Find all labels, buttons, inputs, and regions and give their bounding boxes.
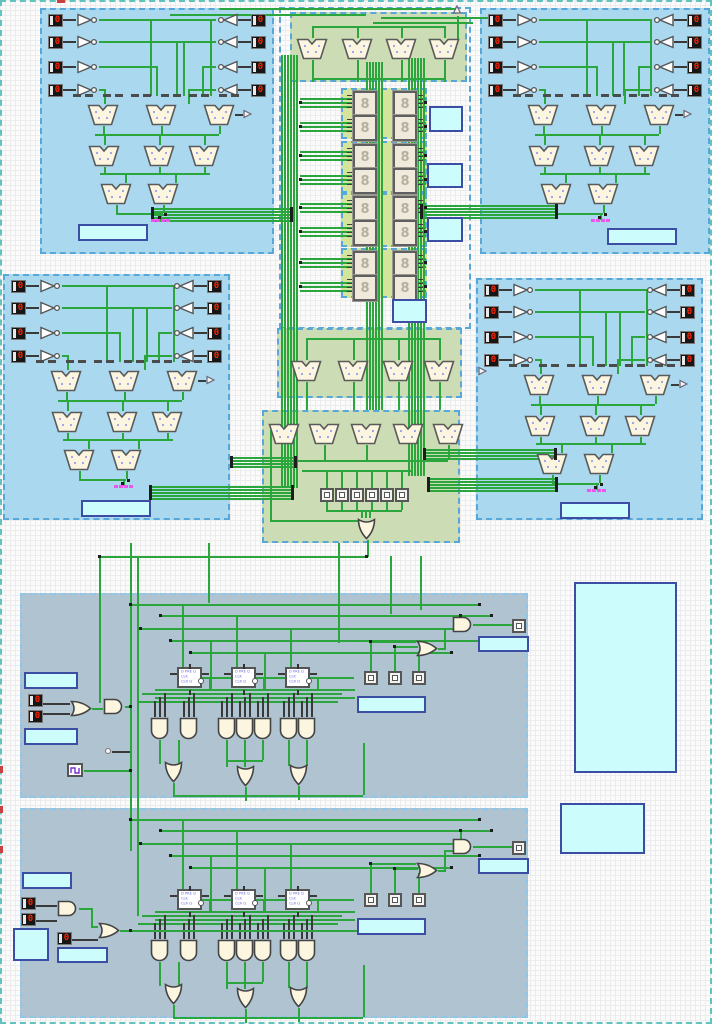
seven-segment-display[interactable]: 8 (353, 196, 377, 222)
junction-dot (365, 555, 368, 558)
multiplexer[interactable] (166, 370, 198, 392)
not-gate[interactable] (76, 60, 99, 74)
and-gate-down[interactable] (150, 939, 169, 962)
input-pin[interactable]: 0 (207, 350, 222, 363)
and-gate-down[interactable] (150, 717, 169, 740)
wire (255, 677, 289, 679)
not-gate[interactable] (512, 330, 535, 344)
not-gate[interactable] (652, 13, 675, 27)
led-probe[interactable] (412, 893, 426, 907)
input-pin[interactable]: 0 (251, 61, 266, 74)
seven-segment-display[interactable]: 8 (353, 144, 377, 170)
wire (310, 895, 317, 897)
multiplexer[interactable] (628, 145, 660, 167)
wire (160, 830, 492, 832)
wire (245, 1009, 247, 1023)
input-pin[interactable]: 0 (251, 36, 266, 49)
input-pin[interactable]: 0 (207, 302, 222, 315)
wire (300, 282, 352, 284)
wire (543, 126, 545, 134)
label-box[interactable] (357, 918, 426, 935)
wire (301, 701, 303, 717)
led-probe[interactable] (395, 488, 409, 502)
label-box[interactable] (560, 502, 630, 519)
wire (300, 231, 352, 233)
display-glyph: 8 (360, 258, 369, 271)
input-pin[interactable]: 0 (11, 350, 26, 363)
or-gate[interactable] (416, 862, 438, 879)
and-gate-down[interactable] (235, 717, 254, 740)
wire (159, 962, 161, 986)
label-box[interactable] (57, 947, 108, 963)
pin-value: 0 (16, 328, 25, 339)
unconnected-node (166, 219, 170, 222)
seven-segment-display[interactable]: 8 (393, 91, 417, 117)
wire (130, 543, 132, 850)
ff-line1: D PRE Q (181, 670, 192, 673)
multiplexer[interactable] (151, 411, 183, 433)
wire (503, 41, 516, 43)
not-gate[interactable] (512, 305, 535, 319)
and-gate[interactable] (103, 698, 125, 715)
wire (624, 89, 626, 104)
wire (300, 290, 352, 292)
d-flip-flop[interactable]: D PRE QCLKCLR Q (177, 889, 202, 910)
input-pin[interactable]: 0 (11, 327, 26, 340)
seven-segment-display[interactable]: 8 (393, 168, 417, 194)
wire (79, 471, 81, 479)
output-arrow[interactable] (206, 375, 215, 385)
input-pin[interactable]: 0 (48, 61, 63, 74)
wire (63, 89, 76, 91)
display-glyph: 8 (360, 227, 369, 240)
clock-generator[interactable] (67, 763, 83, 777)
multiplexer[interactable] (203, 104, 235, 126)
input-pin[interactable]: 0 (488, 36, 503, 49)
multiplexer[interactable] (341, 38, 373, 60)
wire (126, 471, 128, 479)
wire (353, 338, 355, 360)
d-flip-flop[interactable]: D PRE QCLKCLR Q (231, 667, 256, 688)
not-gate[interactable] (645, 283, 668, 297)
not-gate[interactable] (652, 60, 675, 74)
input-pin[interactable]: 0 (680, 354, 695, 367)
seven-segment-display[interactable]: 8 (353, 168, 377, 194)
or-gate[interactable] (70, 700, 92, 717)
d-flip-flop[interactable]: D PRE QCLKCLR Q (285, 667, 310, 688)
multiplexer[interactable] (587, 183, 619, 205)
multiplexer[interactable] (63, 449, 95, 471)
multiplexer[interactable] (308, 423, 340, 445)
not-gate[interactable] (172, 301, 195, 315)
multiplexer[interactable] (428, 38, 460, 60)
pin-value: 0 (692, 85, 701, 96)
and-gate[interactable] (452, 838, 474, 855)
wire (144, 355, 172, 357)
wire (300, 258, 352, 260)
wire (311, 915, 313, 939)
wire (300, 175, 352, 177)
wire (267, 915, 269, 939)
output-arrow[interactable] (243, 109, 252, 119)
wire (150, 489, 293, 491)
bus-tap (567, 364, 575, 367)
input-pin[interactable]: 0 (484, 284, 499, 297)
or-gate-down[interactable] (236, 765, 255, 787)
input-pin[interactable]: 0 (48, 14, 63, 27)
input-pin[interactable]: 0 (687, 61, 702, 74)
input-pin[interactable]: 0 (48, 36, 63, 49)
multiplexer[interactable] (188, 145, 220, 167)
label-box[interactable] (429, 106, 463, 132)
led-probe[interactable] (364, 671, 378, 685)
multiplexer[interactable] (527, 104, 559, 126)
multiplexer[interactable] (290, 360, 322, 382)
ff-line3: CLR Q (235, 902, 246, 905)
seven-segment-display[interactable]: 8 (393, 275, 417, 301)
not-gate[interactable] (172, 279, 195, 293)
input-pin[interactable]: 0 (251, 84, 266, 97)
input-pin[interactable]: 0 (21, 913, 36, 926)
or-gate-down[interactable] (289, 764, 308, 786)
led-probe[interactable] (350, 488, 364, 502)
wire (619, 311, 621, 366)
not-gate[interactable] (645, 305, 668, 319)
label-box[interactable] (478, 858, 529, 874)
input-pin[interactable]: 0 (28, 710, 43, 723)
multiplexer[interactable] (147, 183, 179, 205)
and-gate[interactable] (452, 616, 474, 633)
not-gate[interactable] (652, 35, 675, 49)
input-pin[interactable]: 0 (687, 36, 702, 49)
wire (256, 895, 263, 897)
unconnected-node (129, 485, 133, 488)
multiplexer[interactable] (639, 374, 671, 396)
or-gate-down[interactable] (164, 983, 183, 1005)
wire (473, 846, 512, 848)
unconnected-node (587, 489, 591, 492)
junction-dot (427, 489, 430, 492)
display-glyph: 8 (360, 122, 369, 135)
not-gate[interactable] (516, 35, 539, 49)
multiplexer[interactable] (100, 183, 132, 205)
not-gate[interactable] (76, 13, 99, 27)
multiplexer[interactable] (643, 104, 675, 126)
input-pin[interactable]: 0 (488, 84, 503, 97)
input-pin[interactable]: 0 (11, 302, 26, 315)
label-box-large[interactable] (574, 582, 677, 773)
led-probe[interactable] (388, 671, 402, 685)
seven-segment-display[interactable]: 8 (393, 220, 417, 246)
or-gate-down[interactable] (236, 987, 255, 1009)
or-gate[interactable] (98, 922, 120, 939)
not-gate[interactable] (516, 13, 539, 27)
output-arrow[interactable] (478, 366, 487, 376)
not-gate[interactable] (39, 279, 62, 293)
seven-segment-display[interactable]: 8 (393, 144, 417, 170)
label-box[interactable] (427, 163, 463, 188)
or-gate[interactable] (416, 640, 438, 657)
junction-dot (299, 230, 302, 233)
wire (386, 502, 388, 510)
bus-tap (583, 94, 591, 97)
multiplexer[interactable] (624, 415, 656, 437)
not-gate[interactable] (216, 60, 239, 74)
seven-segment-display[interactable]: 8 (393, 115, 417, 141)
d-flip-flop[interactable]: D PRE QCLKCLR Q (231, 889, 256, 910)
wire (238, 66, 252, 68)
label-box[interactable] (478, 636, 529, 652)
or-gate-down[interactable] (357, 518, 376, 540)
label-box[interactable] (24, 728, 78, 745)
and-gate-down[interactable] (297, 939, 316, 962)
pin-value: 0 (26, 898, 35, 909)
wire (300, 126, 352, 128)
wire (659, 126, 661, 134)
wire (300, 122, 352, 124)
input-pin[interactable]: 0 (687, 14, 702, 27)
wire (176, 41, 216, 43)
junction-dot (478, 854, 481, 857)
wire (306, 962, 308, 988)
label-box[interactable] (427, 217, 463, 242)
led-probe[interactable] (364, 893, 378, 907)
pin-value: 0 (212, 303, 221, 314)
label-box[interactable] (22, 872, 72, 889)
ff-line2: CLK (289, 897, 300, 900)
wire (219, 126, 221, 134)
multiplexer[interactable] (524, 415, 556, 437)
multiplexer[interactable] (583, 145, 615, 167)
multiplexer[interactable] (108, 370, 140, 392)
wire (26, 285, 39, 287)
wire (615, 173, 617, 183)
multiplexer[interactable] (385, 38, 417, 60)
bus-tap (219, 94, 227, 97)
label-box[interactable] (607, 228, 677, 245)
led-probe[interactable] (380, 488, 394, 502)
not-gate[interactable] (216, 13, 239, 27)
led-probe[interactable] (335, 488, 349, 502)
input-pin[interactable]: 0 (11, 280, 26, 293)
wire (160, 615, 492, 617)
label-box[interactable] (24, 672, 78, 689)
output-arrow[interactable] (683, 109, 692, 119)
multiplexer[interactable] (579, 415, 611, 437)
input-pin[interactable]: 0 (680, 284, 695, 297)
and-gate-down[interactable] (179, 939, 198, 962)
bus-tap (36, 360, 44, 363)
or-gate-down[interactable] (164, 761, 183, 783)
multiplexer[interactable] (523, 374, 555, 396)
multiplexer[interactable] (106, 411, 138, 433)
led-probe[interactable] (320, 488, 334, 502)
and-gate-down[interactable] (217, 939, 236, 962)
wire (499, 359, 512, 361)
multiplexer[interactable] (143, 145, 175, 167)
wire (231, 915, 233, 939)
input-pin[interactable]: 0 (48, 84, 63, 97)
wire (624, 89, 652, 91)
display-glyph: 8 (360, 151, 369, 164)
input-pin[interactable]: 0 (488, 61, 503, 74)
wire (288, 962, 290, 988)
bus-tap (571, 94, 579, 97)
not-gate[interactable] (645, 330, 668, 344)
multiplexer[interactable] (337, 360, 369, 382)
d-flip-flop[interactable]: D PRE QCLKCLR Q (177, 667, 202, 688)
seven-segment-display[interactable]: 8 (393, 251, 417, 277)
unconnected-node (591, 219, 595, 222)
input-pin[interactable]: 0 (680, 331, 695, 344)
label-box[interactable] (357, 696, 426, 713)
input-pin[interactable]: 0 (488, 14, 503, 27)
wire (236, 615, 238, 667)
not-gate[interactable] (39, 326, 62, 340)
junction-dot (139, 627, 142, 630)
wire (36, 920, 57, 922)
input-pin[interactable]: 0 (680, 306, 695, 319)
d-flip-flop[interactable]: D PRE QCLKCLR Q (285, 889, 310, 910)
wire (373, 22, 473, 24)
label-box[interactable] (81, 500, 151, 517)
wire (262, 740, 264, 760)
not-gate[interactable] (216, 35, 239, 49)
input-pin[interactable]: 0 (207, 327, 222, 340)
bus-tap (85, 94, 93, 97)
multiplexer[interactable] (87, 104, 119, 126)
wire (586, 19, 588, 96)
seven-segment-display[interactable]: 8 (353, 220, 377, 246)
label-box-tall[interactable] (13, 928, 49, 961)
and-gate-down[interactable] (297, 717, 316, 740)
multiplexer[interactable] (110, 449, 142, 471)
multiplexer[interactable] (145, 104, 177, 126)
multiplexer[interactable] (350, 423, 382, 445)
input-pin[interactable]: 0 (21, 897, 36, 910)
led-probe[interactable] (512, 619, 526, 633)
seven-segment-display[interactable]: 8 (353, 275, 377, 301)
not-gate[interactable] (512, 283, 535, 297)
pin-value: 0 (493, 85, 502, 96)
wire (63, 19, 76, 21)
wire (311, 693, 313, 717)
wire (100, 173, 210, 175)
or-gate-down[interactable] (289, 986, 308, 1008)
label-box[interactable] (78, 224, 148, 241)
and-gate[interactable] (57, 900, 79, 917)
not-gate[interactable] (76, 35, 99, 49)
multiplexer[interactable] (268, 423, 300, 445)
multiplexer[interactable] (581, 374, 613, 396)
multiplexer[interactable] (50, 370, 82, 392)
wire (536, 443, 646, 445)
multiplexer[interactable] (423, 360, 455, 382)
wire (231, 693, 233, 717)
bus-tap (48, 360, 56, 363)
output-arrow[interactable] (679, 379, 688, 389)
input-pin[interactable]: 0 (207, 280, 222, 293)
junction-dot (164, 213, 167, 216)
and-gate-down[interactable] (253, 939, 272, 962)
and-gate-down[interactable] (179, 717, 198, 740)
led-probe[interactable] (412, 671, 426, 685)
multiplexer[interactable] (528, 145, 560, 167)
input-pin[interactable]: 0 (484, 306, 499, 319)
seven-segment-display[interactable]: 8 (353, 251, 377, 277)
wire (309, 899, 354, 901)
wire (256, 673, 263, 675)
junction-dot (424, 206, 427, 209)
wire (341, 470, 343, 488)
not-gate[interactable] (172, 326, 195, 340)
junction-dot (600, 483, 603, 486)
input-pin[interactable]: 0 (28, 694, 43, 707)
and-gate-down[interactable] (279, 939, 298, 962)
input-pin[interactable]: 0 (57, 932, 72, 945)
seven-segment-display[interactable]: 8 (393, 196, 417, 222)
multiplexer[interactable] (51, 411, 83, 433)
not-gate[interactable] (39, 301, 62, 315)
and-gate-down[interactable] (279, 717, 298, 740)
bus-tap (555, 94, 563, 97)
multiplexer[interactable] (392, 423, 424, 445)
multiplexer[interactable] (296, 38, 328, 60)
wire (201, 677, 235, 679)
probe-core (392, 897, 398, 903)
junction-dot (159, 614, 162, 617)
not-gate[interactable] (516, 60, 539, 74)
wire (155, 697, 355, 699)
multiplexer[interactable] (432, 423, 464, 445)
label-box[interactable] (392, 299, 427, 323)
seven-segment-display[interactable]: 8 (353, 115, 377, 141)
input-pin[interactable]: 0 (251, 14, 266, 27)
junction-dot (478, 603, 481, 606)
multiplexer[interactable] (536, 453, 568, 475)
input-pin[interactable]: 0 (484, 331, 499, 344)
junction-dot (129, 705, 132, 708)
led-probe[interactable] (512, 841, 526, 855)
wire (221, 701, 223, 717)
wire (244, 962, 246, 989)
input-pin[interactable]: 0 (687, 84, 702, 97)
and-gate-down[interactable] (235, 939, 254, 962)
multiplexer[interactable] (585, 104, 617, 126)
multiplexer[interactable] (583, 453, 615, 475)
wire (401, 470, 403, 488)
junction-dot (129, 929, 132, 932)
label-box-side[interactable] (560, 803, 645, 854)
and-gate-down[interactable] (217, 717, 236, 740)
wire (249, 693, 251, 717)
multiplexer[interactable] (382, 360, 414, 382)
led-probe[interactable] (388, 893, 402, 907)
wire (398, 382, 400, 410)
pin-value: 0 (53, 15, 62, 26)
edge-tick (0, 846, 3, 853)
output-arrow-up[interactable] (452, 5, 462, 14)
wire (370, 641, 416, 643)
junction-dot (299, 261, 302, 264)
seven-segment-display[interactable]: 8 (353, 91, 377, 117)
multiplexer[interactable] (540, 183, 572, 205)
and-gate-down[interactable] (253, 717, 272, 740)
wire (188, 697, 190, 717)
led-probe[interactable] (365, 488, 379, 502)
wire (176, 41, 178, 96)
multiplexer[interactable] (88, 145, 120, 167)
